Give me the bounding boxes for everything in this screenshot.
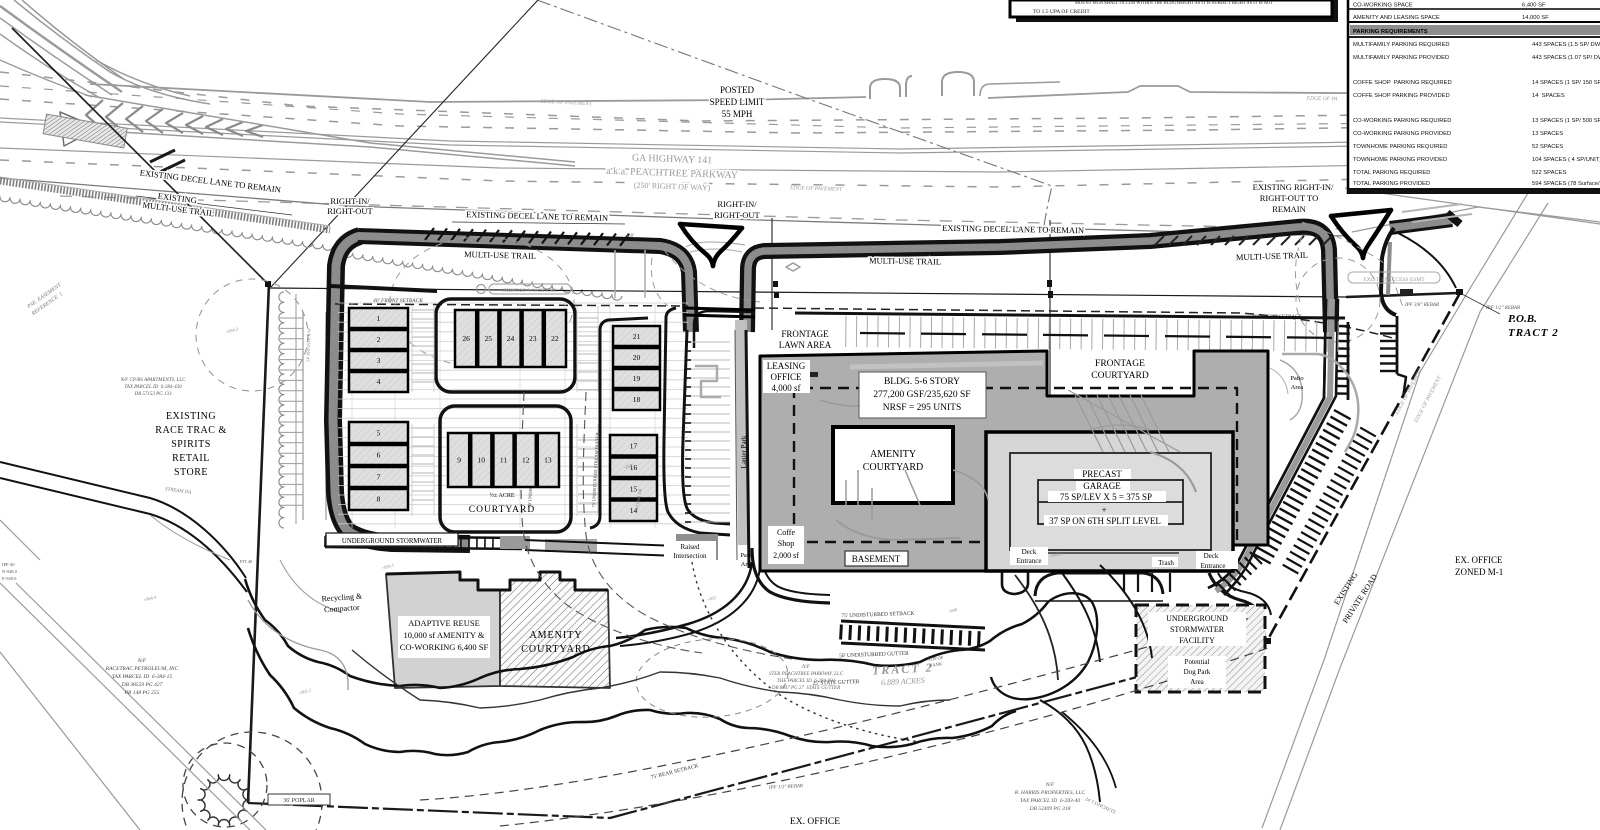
svg-text:TOWNHOME PARKING REQUIRED: TOWNHOME PARKING REQUIRED bbox=[1353, 144, 1447, 150]
svg-text:Patio: Patio bbox=[1290, 375, 1303, 382]
svg-text:EXISTING: EXISTING bbox=[166, 411, 216, 422]
svg-text:EDGE OF PA: EDGE OF PA bbox=[1306, 95, 1339, 102]
svg-text:CO-WORKING PARKING REQUIRED: CO-WORKING PARKING REQUIRED bbox=[1353, 118, 1451, 124]
svg-text:DB 38559 PG 427: DB 38559 PG 427 bbox=[121, 681, 163, 688]
svg-text:BASEMENT: BASEMENT bbox=[852, 554, 901, 564]
svg-text:TOTAL PARKING REQUIRED: TOTAL PARKING REQUIRED bbox=[1353, 170, 1430, 176]
svg-text:FRONTAGE: FRONTAGE bbox=[781, 329, 829, 339]
svg-text:RACE TRAC &: RACE TRAC & bbox=[155, 425, 226, 436]
svg-text:14,000 SF: 14,000 SF bbox=[1522, 15, 1549, 21]
svg-text:UNDERGROUND: UNDERGROUND bbox=[1166, 614, 1228, 623]
svg-text:594 SPACES (78 Surface/ 41: 594 SPACES (78 Surface/ 41 bbox=[1532, 181, 1600, 187]
svg-text:PB 148 PG 255: PB 148 PG 255 bbox=[124, 689, 160, 696]
svg-text:19: 19 bbox=[633, 374, 641, 383]
svg-text:RIGHT-OUT: RIGHT-OUT bbox=[714, 210, 760, 220]
svg-text:Area: Area bbox=[741, 561, 754, 568]
svg-text:7: 7 bbox=[377, 473, 381, 482]
svg-text:BLDG. 5-6 STORY: BLDG. 5-6 STORY bbox=[884, 377, 960, 387]
svg-text:26: 26 bbox=[462, 334, 470, 343]
svg-text:10,000 sf AMENITY &: 10,000 sf AMENITY & bbox=[404, 630, 485, 640]
svg-text:PIT 40: PIT 40 bbox=[240, 559, 253, 564]
svg-text:Dog Park: Dog Park bbox=[1184, 668, 1211, 676]
svg-text:15: 15 bbox=[630, 484, 638, 493]
svg-text:N/F CP/RS APARTMENTS, LLC: N/F CP/RS APARTMENTS, LLC bbox=[119, 378, 186, 383]
svg-text:17: 17 bbox=[630, 441, 638, 450]
svg-text:TAX PARCEL ID 6-284-430: TAX PARCEL ID 6-284-430 bbox=[124, 385, 182, 390]
svg-text:443 SPACES (1.07 SP/ DWELLI: 443 SPACES (1.07 SP/ DWELLI bbox=[1532, 55, 1600, 61]
svg-text:RETAIL: RETAIL bbox=[172, 453, 210, 464]
svg-text:CO-WORKING PARKING PROVIDED: CO-WORKING PARKING PROVIDED bbox=[1353, 131, 1451, 137]
svg-text:Area: Area bbox=[1190, 678, 1204, 686]
svg-text:13 SPACES (1 SP/ 500 SF): 13 SPACES (1 SP/ 500 SF) bbox=[1532, 118, 1600, 124]
svg-text:COURTYARD: COURTYARD bbox=[1091, 371, 1149, 381]
svg-text:COURTYARD: COURTYARD bbox=[863, 462, 924, 473]
svg-text:EX. OFFICE: EX. OFFICE bbox=[1455, 555, 1503, 565]
svg-text:UNDERGROUND STORMWATER: UNDERGROUND STORMWATER bbox=[342, 538, 443, 545]
svg-text:Deck: Deck bbox=[1204, 552, 1219, 560]
svg-text:FACILITY: FACILITY bbox=[1179, 636, 1215, 645]
svg-text:RIGHT-OUT: RIGHT-OUT bbox=[327, 206, 373, 216]
svg-text:TRACT 2: TRACT 2 bbox=[1508, 327, 1559, 339]
svg-text:RIGHT-OUT TO: RIGHT-OUT TO bbox=[1260, 193, 1318, 203]
svg-text:ADAPTIVE REUSE: ADAPTIVE REUSE bbox=[408, 618, 480, 628]
svg-text:Entrance: Entrance bbox=[1201, 562, 1226, 570]
svg-text:443 SPACES (1.5 SP/ DWELLIN: 443 SPACES (1.5 SP/ DWELLIN bbox=[1532, 42, 1600, 48]
svg-text:Lanier Park: Lanier Park bbox=[740, 435, 748, 468]
svg-text:AMENITY AND LEASING SPACE: AMENITY AND LEASING SPACE bbox=[1353, 15, 1440, 21]
svg-text:14 SPACES: 14 SPACES bbox=[1532, 93, 1565, 99]
svg-text:9: 9 bbox=[457, 456, 461, 465]
svg-text:104 SPACES ( 4 SP/UNIT): 104 SPACES ( 4 SP/UNIT) bbox=[1532, 157, 1600, 163]
svg-text:MULTIFAMILY PARKING PROVIDED: MULTIFAMILY PARKING PROVIDED bbox=[1353, 55, 1449, 61]
svg-text:P.O.B.: P.O.B. bbox=[1508, 313, 1537, 325]
svg-text:14 SPACES (1 SP/ 150 SF): 14 SPACES (1 SP/ 150 SF) bbox=[1532, 80, 1600, 86]
svg-text:SPIRITS: SPIRITS bbox=[171, 439, 211, 450]
svg-text:N/F: N/F bbox=[801, 665, 811, 670]
svg-text:LEASING: LEASING bbox=[767, 361, 806, 371]
svg-text:2: 2 bbox=[377, 335, 381, 344]
svg-text:REMAIN: REMAIN bbox=[1272, 204, 1306, 214]
svg-text:STORMWATER: STORMWATER bbox=[1170, 625, 1225, 634]
svg-text:10: 10 bbox=[478, 456, 486, 465]
svg-text:EXISTING RIGHT-IN/: EXISTING RIGHT-IN/ bbox=[1253, 182, 1334, 192]
svg-text:5: 5 bbox=[377, 429, 381, 438]
svg-text:DB 52409 PG 318: DB 52409 PG 318 bbox=[1029, 805, 1071, 812]
svg-text:PRECAST: PRECAST bbox=[1082, 469, 1122, 479]
svg-text:8: 8 bbox=[377, 495, 381, 504]
svg-text:Intersection: Intersection bbox=[673, 552, 707, 560]
svg-text:TOTAL PARKING PROVIDED: TOTAL PARKING PROVIDED bbox=[1353, 181, 1430, 187]
svg-text:COFFE SHOP PARKING REQUIRED: COFFE SHOP PARKING REQUIRED bbox=[1353, 80, 1452, 86]
svg-text:6,400 SF: 6,400 SF bbox=[1522, 3, 1546, 9]
svg-text:55 MPH: 55 MPH bbox=[722, 109, 753, 119]
svg-text:TOWNHOME PARKING PROVIDED: TOWNHOME PARKING PROVIDED bbox=[1353, 157, 1447, 163]
svg-text:TAX PARCEL ID 6-283-40: TAX PARCEL ID 6-283-40 bbox=[1020, 797, 1080, 804]
svg-text:23: 23 bbox=[529, 334, 537, 343]
svg-text:LAWN AREA: LAWN AREA bbox=[779, 340, 832, 350]
svg-text:NRSF = 295 UNITS: NRSF = 295 UNITS bbox=[883, 403, 961, 413]
svg-text:SPEED LIMIT: SPEED LIMIT bbox=[710, 97, 765, 107]
svg-text:25: 25 bbox=[485, 334, 493, 343]
svg-text:522 SPACES: 522 SPACES bbox=[1532, 170, 1567, 176]
svg-text:CO-WORKING 6,400 SF: CO-WORKING 6,400 SF bbox=[400, 642, 489, 652]
svg-text:ZONED M-1: ZONED M-1 bbox=[1455, 567, 1503, 577]
svg-text:GARAGE: GARAGE bbox=[1083, 481, 1121, 491]
svg-text:Raised: Raised bbox=[680, 543, 700, 551]
svg-text:11: 11 bbox=[500, 456, 507, 465]
svg-text:N/F: N/F bbox=[1045, 782, 1055, 788]
svg-text:AMENITY: AMENITY bbox=[870, 449, 916, 460]
svg-text:36' POPLAR: 36' POPLAR bbox=[283, 798, 315, 804]
svg-text:R. HARRIS PROPERTIES, LLC: R. HARRIS PROPERTIES, LLC bbox=[1014, 790, 1086, 796]
svg-text:1: 1 bbox=[377, 314, 381, 323]
svg-text:Deck: Deck bbox=[1022, 548, 1037, 556]
svg-text:STER PEACHTREE PARKWAY, LLC: STER PEACHTREE PARKWAY, LLC bbox=[769, 672, 844, 677]
svg-text:TAX PARCEL ID 6-284-15: TAX PARCEL ID 6-284-15 bbox=[112, 673, 172, 680]
svg-text:COFFE SHOP PARKING PROVIDED: COFFE SHOP PARKING PROVIDED bbox=[1353, 93, 1450, 99]
svg-text:EXIST 20' W SCE ESM: EXIST 20' W SCE ESM bbox=[503, 288, 557, 294]
svg-text:FRONTAGE: FRONTAGE bbox=[1095, 359, 1145, 369]
svg-text:E-949.0: E-949.0 bbox=[2, 576, 17, 581]
svg-text:13 SPACES: 13 SPACES bbox=[1532, 131, 1563, 137]
svg-text:Shop: Shop bbox=[778, 539, 794, 548]
svg-text:Patio: Patio bbox=[740, 552, 753, 559]
svg-text:20: 20 bbox=[633, 353, 641, 362]
svg-text:IPF 3/8" REBAR: IPF 3/8" REBAR bbox=[1404, 303, 1439, 308]
svg-text:52 SPACES: 52 SPACES bbox=[1532, 144, 1563, 150]
svg-text:RIGHT-IN/: RIGHT-IN/ bbox=[717, 199, 757, 209]
svg-text:EX. OFFICE: EX. OFFICE bbox=[790, 817, 840, 827]
svg-text:Entrance: Entrance bbox=[1017, 557, 1042, 565]
svg-text:Potential: Potential bbox=[1185, 658, 1210, 666]
svg-text:21: 21 bbox=[633, 332, 641, 341]
svg-text:MULTIFAMILY PARKING REQUIRED: MULTIFAMILY PARKING REQUIRED bbox=[1353, 42, 1450, 48]
svg-text:IPF-40: IPF-40 bbox=[2, 562, 15, 567]
svg-text:24: 24 bbox=[507, 334, 515, 343]
svg-text:22: 22 bbox=[551, 334, 559, 343]
svg-text:N/F: N/F bbox=[137, 658, 147, 664]
svg-text:RACETRAC PETROLEUM, INC: RACETRAC PETROLEUM, INC bbox=[105, 666, 179, 672]
svg-text:Area: Area bbox=[1291, 384, 1304, 391]
svg-text:3: 3 bbox=[377, 356, 381, 365]
svg-text:75 SP/LEV X 5 = 375 SP: 75 SP/LEV X 5 = 375 SP bbox=[1060, 492, 1152, 502]
svg-text:18: 18 bbox=[633, 395, 641, 404]
svg-text:MOUNT SIGN SHALL OCCUR WITHIN: MOUNT SIGN SHALL OCCUR WITHIN THE BLDG H… bbox=[1075, 0, 1273, 5]
svg-text:N-948.0: N-948.0 bbox=[2, 569, 18, 574]
svg-text:½± ACRE: ½± ACRE bbox=[490, 492, 515, 499]
svg-text:EXIST 30' ACCESS ESMT: EXIST 30' ACCESS ESMT bbox=[1363, 277, 1425, 283]
svg-text:450': 450' bbox=[626, 234, 635, 239]
svg-text:TO 1.5 UPA OF CREDIT: TO 1.5 UPA OF CREDIT bbox=[1033, 9, 1090, 15]
svg-text:13: 13 bbox=[544, 456, 552, 465]
svg-text:DB 57153 PG 133: DB 57153 PG 133 bbox=[133, 392, 172, 397]
svg-text:OFFICE: OFFICE bbox=[770, 372, 802, 382]
svg-text:37 SP ON 6TH SPLIT LEVEL: 37 SP ON 6TH SPLIT LEVEL bbox=[1049, 516, 1161, 526]
svg-text:PARKING REQUIREMENTS: PARKING REQUIREMENTS bbox=[1353, 29, 1428, 35]
svg-text:6: 6 bbox=[377, 451, 381, 460]
svg-text:POSTED: POSTED bbox=[720, 85, 755, 95]
svg-text:4: 4 bbox=[377, 377, 381, 386]
svg-text:MULTI-USE TRAIL: MULTI-USE TRAIL bbox=[464, 249, 536, 261]
svg-text:Trash: Trash bbox=[1158, 559, 1174, 567]
svg-text:RIGHT-IN/: RIGHT-IN/ bbox=[330, 196, 370, 206]
svg-text:2,000 sf: 2,000 sf bbox=[773, 551, 799, 560]
svg-text:277,200 GSF/235,620 SF: 277,200 GSF/235,620 SF bbox=[873, 390, 970, 400]
svg-text:Coffe: Coffe bbox=[777, 528, 796, 537]
svg-text:DB 8847 PG 27 STATE GUTTER: DB 8847 PG 27 STATE GUTTER bbox=[771, 686, 840, 691]
svg-text:+: + bbox=[1101, 505, 1106, 515]
svg-text:AMENITY: AMENITY bbox=[529, 630, 582, 641]
svg-text:CO-WORKING SPACE: CO-WORKING SPACE bbox=[1353, 3, 1413, 9]
svg-text:STORE: STORE bbox=[174, 467, 208, 478]
svg-text:4,000 sf: 4,000 sf bbox=[772, 383, 801, 393]
svg-text:COURTYARD: COURTYARD bbox=[521, 644, 591, 655]
svg-text:MULTI-USE TRAIL: MULTI-USE TRAIL bbox=[869, 255, 941, 266]
svg-text:COURTYARD: COURTYARD bbox=[469, 505, 536, 515]
svg-text:12: 12 bbox=[522, 456, 530, 465]
